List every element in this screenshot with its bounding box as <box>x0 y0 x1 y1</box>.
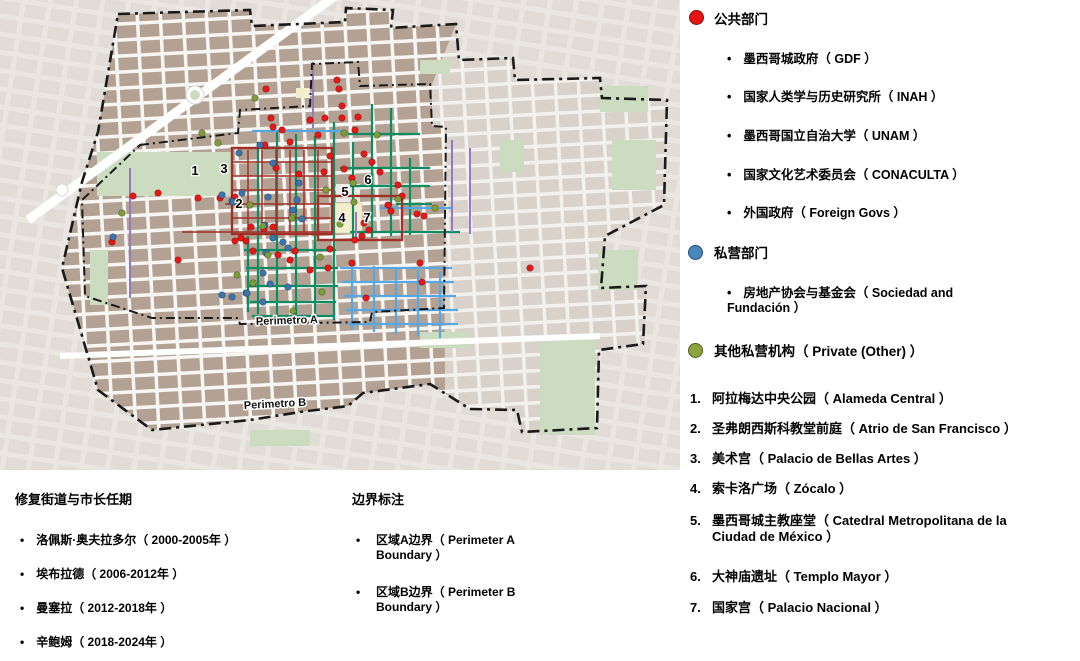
bullet-icon <box>727 52 743 66</box>
map-dot-red <box>322 115 329 122</box>
map-dot-green <box>374 132 381 139</box>
legend-item: 国家文化艺术委员会（ CONACULTA ） <box>727 168 1072 183</box>
map-dot-red <box>292 248 299 255</box>
map-dot-red <box>419 279 426 286</box>
map-dot-green <box>351 199 358 206</box>
map-dot-red <box>366 227 373 234</box>
map-dot-red <box>307 267 314 274</box>
map-dot-green <box>350 180 357 187</box>
legend-public-title: 公共部门 <box>714 12 768 28</box>
map-dot-red <box>341 166 348 173</box>
bullet-icon <box>727 129 743 143</box>
map-dot-red <box>355 114 362 121</box>
legend-private-title: 私营部门 <box>714 246 768 262</box>
bullet-icon <box>356 585 372 600</box>
map-dot-red <box>243 238 250 245</box>
legend-item: 外国政府（ Foreign Govs ） <box>727 206 1072 221</box>
map-dot-red <box>339 103 346 110</box>
map-dot-green <box>319 289 326 296</box>
map-dot-green <box>250 280 257 287</box>
bullet-icon <box>20 533 36 547</box>
map-dot-red <box>296 171 303 178</box>
bullet-icon <box>20 635 36 649</box>
map-dot-red <box>527 265 534 272</box>
boundary-item: 区域B边界（ Perimeter B Boundary ） <box>356 585 571 615</box>
map-dot-red <box>250 248 257 255</box>
map-dot-red <box>270 124 277 131</box>
map-dot-green <box>199 130 206 137</box>
mayors-section-title: 修复街道与市长任期 <box>15 489 132 508</box>
mayor-item: 曼塞拉（ 2012-2018年 ） <box>20 601 320 616</box>
map-dot-green <box>341 130 348 137</box>
map-dot-red <box>349 260 356 267</box>
map-dot-red <box>352 237 359 244</box>
map-dot-blue <box>285 284 292 291</box>
boundary-item: 区域A边界（ Perimeter A Boundary ） <box>356 533 571 563</box>
landmark-row: 4.索卡洛广场（ Zócalo ） <box>690 481 1075 497</box>
map-dot-blue <box>270 160 277 167</box>
city-map: 1234567 Perimetro A Perimetro B <box>0 0 680 470</box>
map-dot-red <box>421 213 428 220</box>
map-dot-green <box>234 272 241 279</box>
map-dot-red <box>334 77 341 84</box>
map-dot-red <box>388 208 395 215</box>
landmark-row: 5. 墨西哥城主教座堂（ Catedral Metropolitana de l… <box>690 513 1020 544</box>
private-other-dot-icon <box>688 343 703 358</box>
map-dot-red <box>336 86 343 93</box>
map-dot-red <box>395 182 402 189</box>
map-dot-green <box>290 308 297 315</box>
map-dot-red <box>369 159 376 166</box>
map-dot-red <box>352 127 359 134</box>
map-dot-blue <box>260 270 267 277</box>
map-dot-blue <box>296 180 303 187</box>
map-dot-red <box>321 169 328 176</box>
map-dot-red <box>327 246 334 253</box>
bullet-icon <box>727 90 743 104</box>
map-marker-1: 1 <box>191 163 198 178</box>
map-dot-green <box>252 95 259 102</box>
map-dot-red <box>377 169 384 176</box>
mayor-item: 辛鲍姆（ 2018-2024年 ） <box>20 635 320 650</box>
landmark-row: 1.阿拉梅达中央公园（ Alameda Central ） <box>690 391 1075 407</box>
map-marker-6: 6 <box>364 172 371 187</box>
map-dot-blue <box>290 207 297 214</box>
map-dot-red <box>325 265 332 272</box>
map-dot-red <box>248 224 255 231</box>
map-dot-blue <box>280 239 287 246</box>
map-dot-green <box>265 252 272 259</box>
legend-item: 墨西哥国立自治大学（ UNAM ） <box>727 129 1072 144</box>
map-dot-red <box>361 151 368 158</box>
map-dot-blue <box>219 192 226 199</box>
landmark-row: 2.圣弗朗西斯科教堂前庭（ Atrio de San Francisco ） <box>690 421 1075 437</box>
map-dot-green <box>317 254 324 261</box>
map-dot-red <box>385 202 392 209</box>
map-dot-green <box>215 140 222 147</box>
map-dot-red <box>195 195 202 202</box>
map-dot-green <box>289 215 296 222</box>
mayor-item: 洛佩斯·奥夫拉多尔（ 2000-2005年 ） <box>20 533 320 548</box>
public-sector-dot-icon <box>689 10 704 25</box>
map-dot-green <box>323 187 330 194</box>
legend-other-title: 其他私营机构（ Private (Other) ） <box>714 344 1074 360</box>
private-sector-dot-icon <box>688 245 703 260</box>
map-dot-red <box>232 238 239 245</box>
map-dot-green <box>395 196 402 203</box>
bullet-icon <box>727 206 743 220</box>
map-dot-blue <box>265 194 272 201</box>
map-dot-red <box>327 153 334 160</box>
map-dot-green <box>432 205 439 212</box>
bullet-icon <box>727 168 743 182</box>
map-dot-blue <box>260 299 267 306</box>
legend-item: 墨西哥城政府（ GDF ） <box>727 52 1072 67</box>
bullet-icon <box>727 286 743 300</box>
map-dot-green <box>119 210 126 217</box>
landmark-row: 7.国家宫（ Palacio Nacional ） <box>690 600 1075 616</box>
map-dot-red <box>315 132 322 139</box>
map-dot-red <box>417 260 424 267</box>
map-dot-red <box>263 86 270 93</box>
map-dot-blue <box>294 197 301 204</box>
legend-item: 房地产协会与基金会（ Sociedad and Fundación ） <box>727 286 975 316</box>
map-dot-blue <box>110 234 117 241</box>
legend-item: 国家人类学与历史研究所（ INAH ） <box>727 90 1072 105</box>
map-marker-5: 5 <box>341 184 348 199</box>
map-dot-red <box>275 252 282 259</box>
map-dot-red <box>175 257 182 264</box>
map-dot-red <box>279 127 286 134</box>
bullet-icon <box>20 567 36 581</box>
landmark-row: 3.美术宫（ Palacio de Bellas Artes ） <box>690 451 1075 467</box>
map-dot-red <box>270 224 277 231</box>
map-dot-red <box>363 295 370 302</box>
map-dot-red <box>130 193 137 200</box>
map-dot-blue <box>229 294 236 301</box>
map-dot-blue <box>219 292 226 299</box>
map-dot-red <box>287 139 294 146</box>
map-dot-blue <box>285 245 292 252</box>
landmark-row: 6.大神庙遗址（ Templo Mayor ） <box>690 569 1075 585</box>
map-dot-blue <box>267 281 274 288</box>
map-dot-blue <box>244 290 251 297</box>
map-dot-blue <box>257 142 264 149</box>
map-dot-blue <box>299 216 306 223</box>
map-marker-4: 4 <box>338 210 346 225</box>
map-dot-red <box>414 211 421 218</box>
perimetro-a-label: Perimetro A <box>256 314 318 328</box>
map-dot-red <box>339 115 346 122</box>
map-dot-blue <box>236 150 243 157</box>
map-dot-red <box>287 257 294 264</box>
map-dot-blue <box>270 235 277 242</box>
boundary-section-title: 边界标注 <box>352 489 404 508</box>
map-marker-3: 3 <box>220 161 227 176</box>
map-dot-red <box>155 190 162 197</box>
map-dot-red <box>359 233 366 240</box>
mayor-item: 埃布拉德（ 2006-2012年 ） <box>20 567 320 582</box>
map-dot-red <box>268 115 275 122</box>
map-dot-red <box>307 117 314 124</box>
map-marker-7: 7 <box>363 210 370 225</box>
bullet-icon <box>20 601 36 615</box>
map-dot-green <box>247 202 254 209</box>
map-marker-2: 2 <box>235 196 242 211</box>
figure-canvas: 1234567 Perimetro A Perimetro B 公共部门 墨西哥… <box>0 0 1080 661</box>
map-dot-green <box>260 223 267 230</box>
bullet-icon <box>356 533 372 548</box>
